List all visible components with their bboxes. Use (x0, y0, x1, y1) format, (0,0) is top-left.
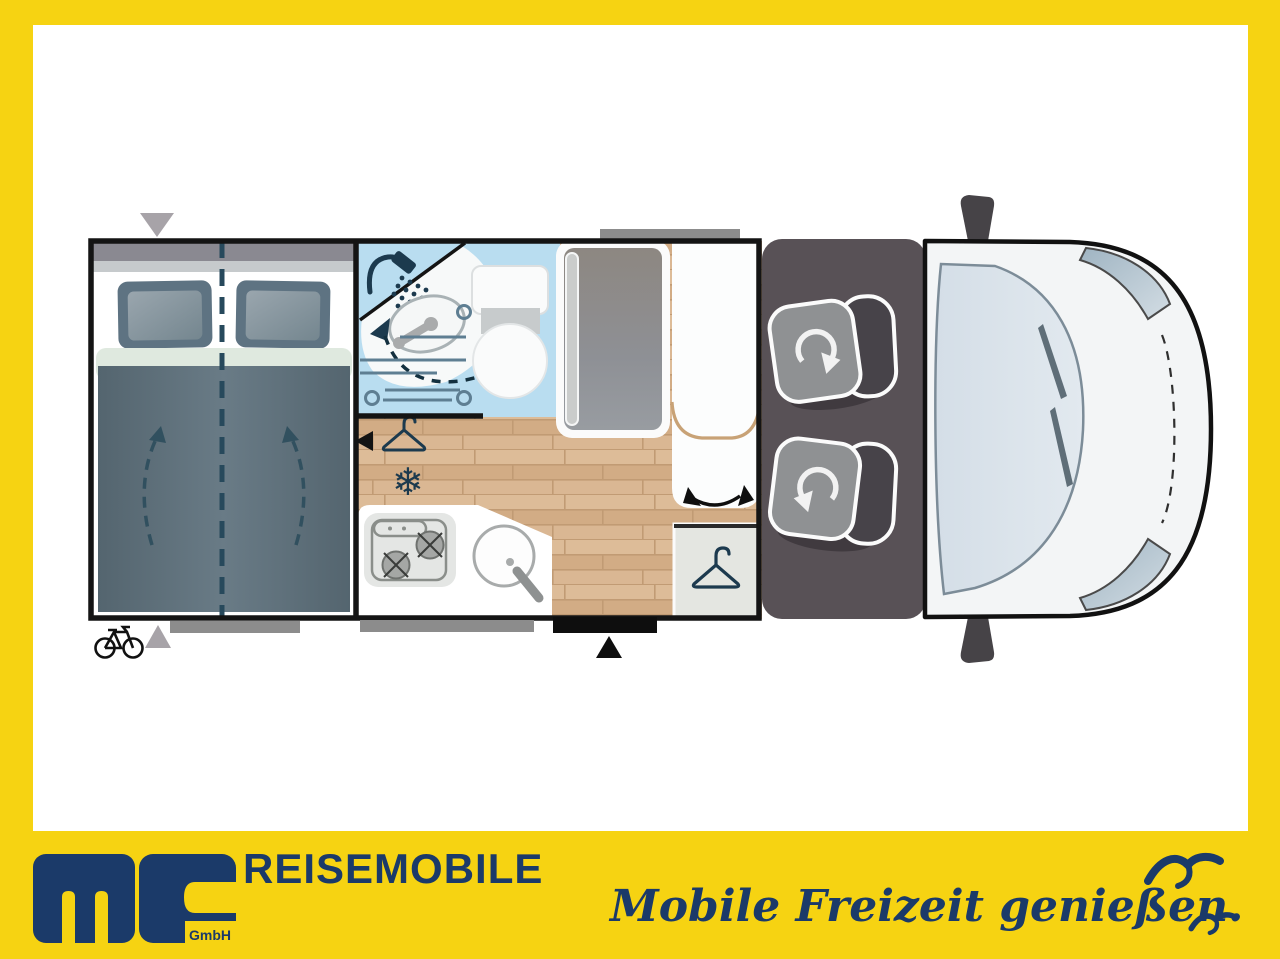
mirror-left (961, 195, 994, 241)
snowflake-icon: ❄ (392, 462, 424, 504)
mirror-right (961, 617, 994, 663)
ms-logo: GmbH (33, 851, 240, 948)
entry-arrow-icon (596, 636, 622, 658)
bed-blanket (98, 366, 350, 612)
rear-bed (91, 241, 355, 616)
bench-seat (556, 240, 670, 438)
floorplan: ❄ (0, 0, 1280, 959)
logo-gmbh-label: GmbH (189, 927, 231, 943)
burner (417, 532, 444, 559)
toilet-icon (472, 266, 548, 398)
bed-pillow-right (235, 280, 330, 349)
roof-vent-marker (140, 213, 174, 237)
van-body (925, 195, 1211, 663)
seagull-icon (1191, 915, 1236, 933)
swivel-seat-passenger (766, 431, 904, 559)
seagull-icons (1130, 843, 1250, 953)
rear-marker-triangle (145, 625, 171, 648)
bed-pillow-left (117, 280, 212, 349)
cab-floor (762, 239, 926, 619)
side-counter (672, 240, 760, 508)
burner (383, 552, 410, 579)
brand-wordmark: REISEMOBILE (243, 845, 543, 893)
seagull-icon (1148, 857, 1220, 886)
bike-icon (96, 627, 143, 658)
wardrobe (674, 524, 760, 620)
logo-m (33, 854, 135, 943)
garage-flap-marker (170, 621, 300, 633)
entry-door-marker (553, 617, 657, 633)
service-flap-marker (360, 620, 534, 632)
